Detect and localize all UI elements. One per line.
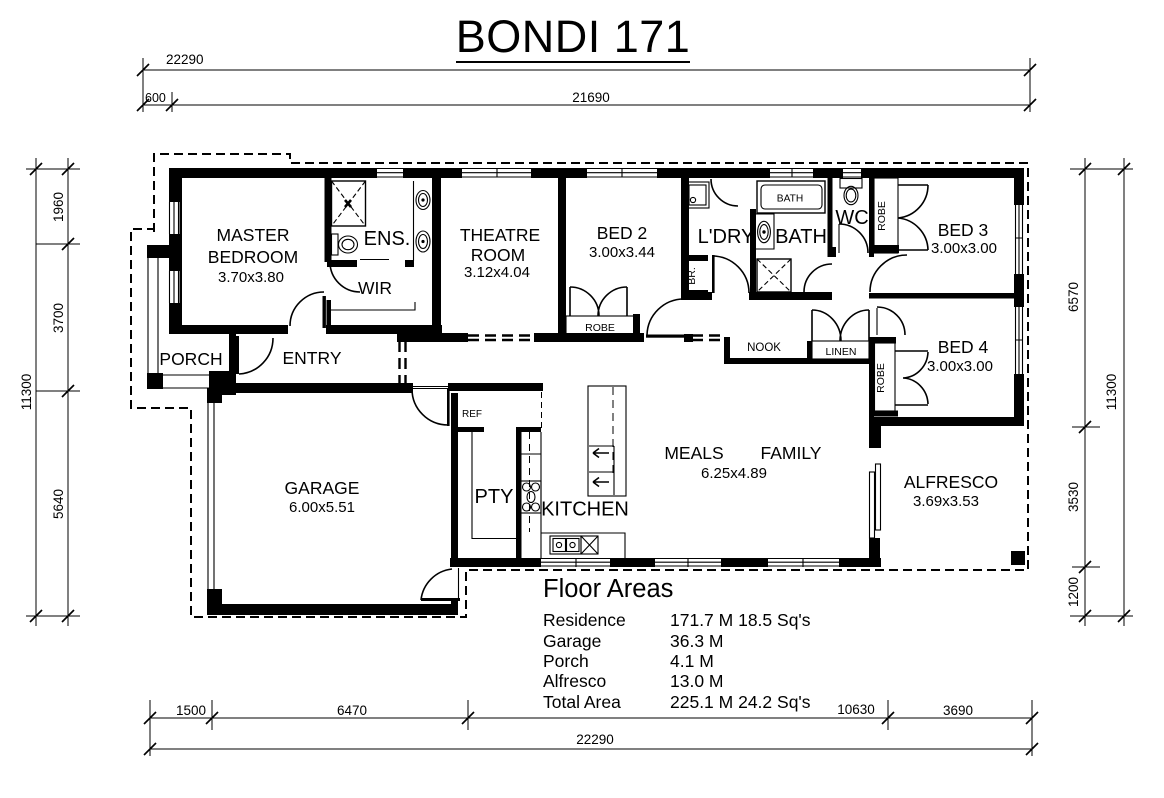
svg-text:1960: 1960 xyxy=(51,192,66,222)
svg-text:BED 3: BED 3 xyxy=(938,220,989,240)
svg-text:Floor Areas: Floor Areas xyxy=(543,575,673,603)
svg-text:WIR: WIR xyxy=(358,278,392,298)
svg-text:11300: 11300 xyxy=(19,374,34,411)
svg-text:6470: 6470 xyxy=(337,703,367,718)
svg-text:6.25x4.89: 6.25x4.89 xyxy=(701,465,767,482)
svg-text:REF: REF xyxy=(462,409,482,420)
svg-text:5640: 5640 xyxy=(51,489,66,519)
svg-text:Residence: Residence xyxy=(543,610,626,630)
svg-text:FAMILY: FAMILY xyxy=(761,443,822,463)
svg-text:ENTRY: ENTRY xyxy=(283,348,342,368)
svg-text:NOOK: NOOK xyxy=(747,342,781,354)
svg-text:3.00x3.44: 3.00x3.44 xyxy=(589,244,655,261)
svg-text:KITCHEN: KITCHEN xyxy=(541,499,629,521)
svg-text:36.3 M: 36.3 M xyxy=(670,631,724,651)
svg-text:WC: WC xyxy=(835,207,868,229)
svg-text:ROOM: ROOM xyxy=(471,245,525,265)
svg-text:BONDI 171: BONDI 171 xyxy=(456,11,691,62)
svg-text:MASTER: MASTER xyxy=(217,225,290,245)
svg-text:171.7 M 18.5 Sq's: 171.7 M 18.5 Sq's xyxy=(670,610,811,630)
svg-text:3690: 3690 xyxy=(943,703,973,718)
svg-text:3530: 3530 xyxy=(1066,482,1081,512)
svg-text:13.0 M: 13.0 M xyxy=(670,671,724,691)
svg-text:BEDROOM: BEDROOM xyxy=(208,247,298,267)
svg-text:600: 600 xyxy=(145,91,166,105)
svg-text:ROBE: ROBE xyxy=(876,201,888,231)
svg-text:BR.: BR. xyxy=(686,267,698,285)
svg-text:6570: 6570 xyxy=(1066,282,1081,312)
svg-text:MEALS: MEALS xyxy=(664,443,723,463)
svg-text:21690: 21690 xyxy=(572,90,610,105)
svg-text:22290: 22290 xyxy=(576,732,614,747)
svg-text:Garage: Garage xyxy=(543,631,601,651)
svg-text:ENS.: ENS. xyxy=(364,228,411,250)
svg-text:225.1 M 24.2 Sq's: 225.1 M 24.2 Sq's xyxy=(670,692,811,712)
svg-text:Total Area: Total Area xyxy=(543,692,621,712)
svg-text:LINEN: LINEN xyxy=(826,346,857,358)
svg-text:ROBE: ROBE xyxy=(875,363,887,393)
svg-text:L'DRY: L'DRY xyxy=(698,226,755,248)
svg-text:PTY: PTY xyxy=(475,486,514,508)
svg-text:PORCH: PORCH xyxy=(159,349,222,369)
svg-text:6.00x5.51: 6.00x5.51 xyxy=(289,499,355,516)
svg-text:10630: 10630 xyxy=(837,702,875,717)
svg-text:BATH: BATH xyxy=(777,194,803,205)
svg-text:ROBE: ROBE xyxy=(585,322,615,334)
svg-text:1500: 1500 xyxy=(176,703,206,718)
svg-text:3.00x3.00: 3.00x3.00 xyxy=(931,240,997,257)
svg-text:22290: 22290 xyxy=(166,52,204,67)
svg-text:BED 2: BED 2 xyxy=(597,223,648,243)
svg-text:ALFRESCO: ALFRESCO xyxy=(904,472,998,492)
svg-text:GARAGE: GARAGE xyxy=(285,478,360,498)
svg-text:3.00x3.00: 3.00x3.00 xyxy=(927,358,993,375)
svg-text:1200: 1200 xyxy=(1066,577,1081,607)
svg-text:4.1 M: 4.1 M xyxy=(670,651,714,671)
svg-text:11300: 11300 xyxy=(1104,374,1119,411)
svg-text:BATH: BATH xyxy=(775,226,827,248)
svg-text:Porch: Porch xyxy=(543,651,589,671)
svg-text:3.70x3.80: 3.70x3.80 xyxy=(218,269,284,286)
svg-text:3.12x4.04: 3.12x4.04 xyxy=(464,264,530,281)
svg-text:THEATRE: THEATRE xyxy=(460,225,540,245)
svg-text:Alfresco: Alfresco xyxy=(543,671,606,691)
svg-text:BED 4: BED 4 xyxy=(938,337,989,357)
svg-text:3700: 3700 xyxy=(51,303,66,333)
svg-text:3.69x3.53: 3.69x3.53 xyxy=(913,493,979,510)
